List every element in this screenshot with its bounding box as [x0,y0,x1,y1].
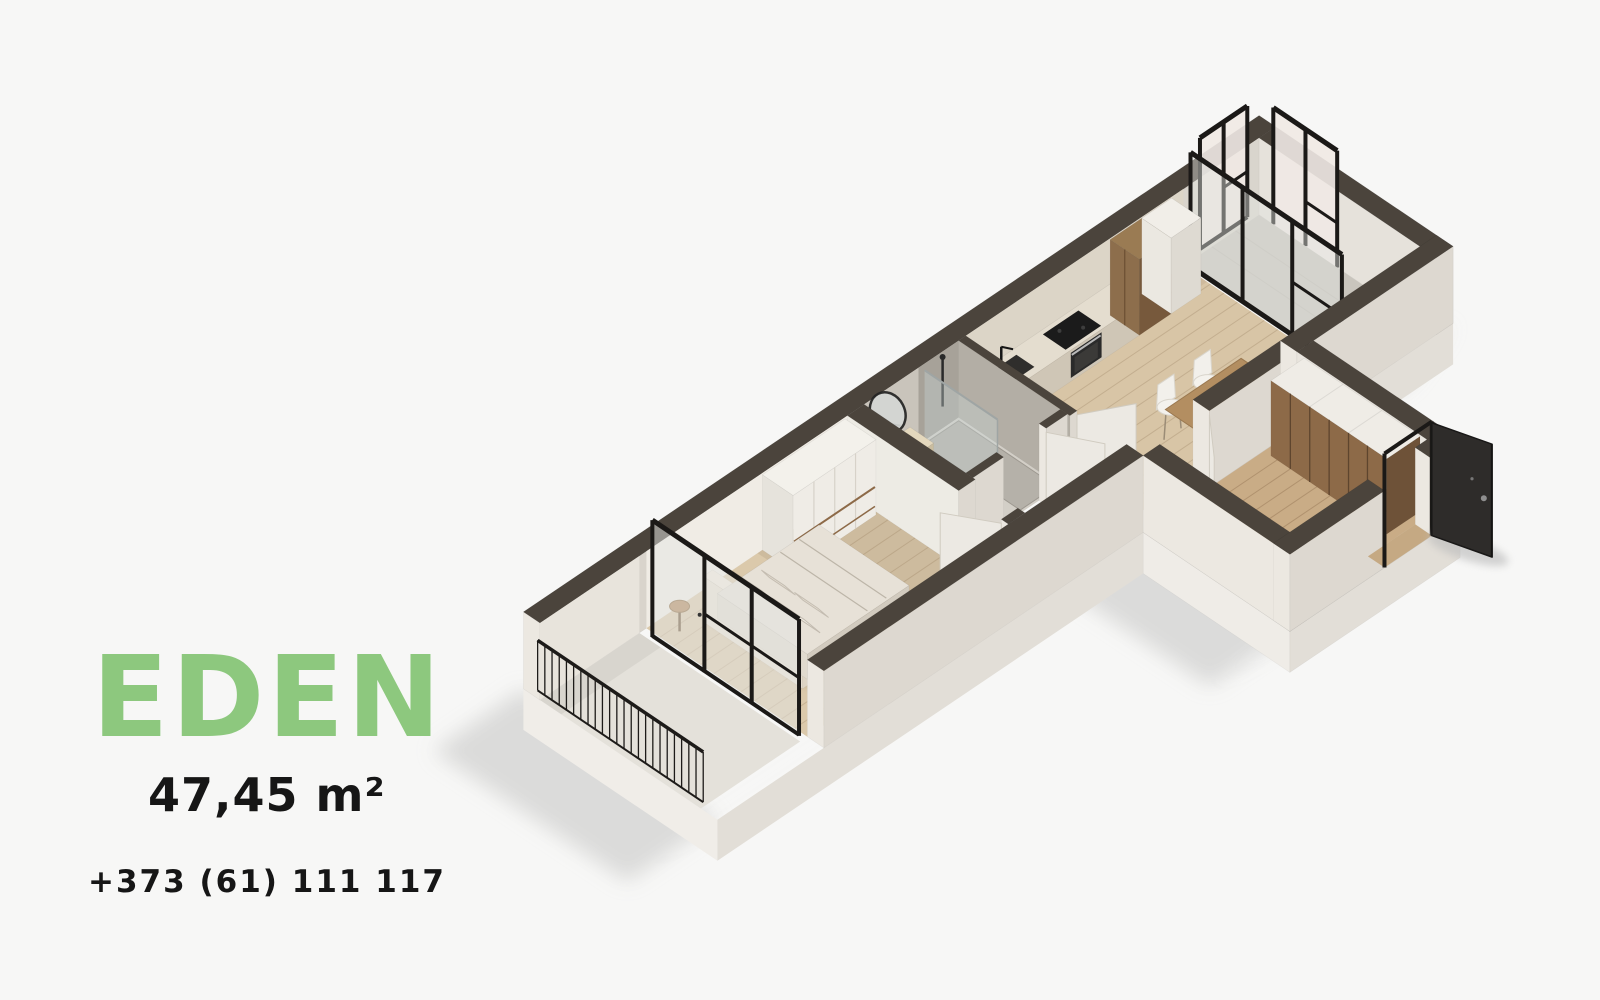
floorplan-3d-render [0,0,1600,1000]
marketing-floorplan-page: EDEN 47,45 m² +373 (61) 111 117 [0,0,1600,1000]
phone-number: +373 (61) 111 117 [88,864,446,900]
brand-title: EDEN [92,642,444,754]
area-label: 47,45 m² [148,768,386,822]
door-handle [1481,495,1487,501]
